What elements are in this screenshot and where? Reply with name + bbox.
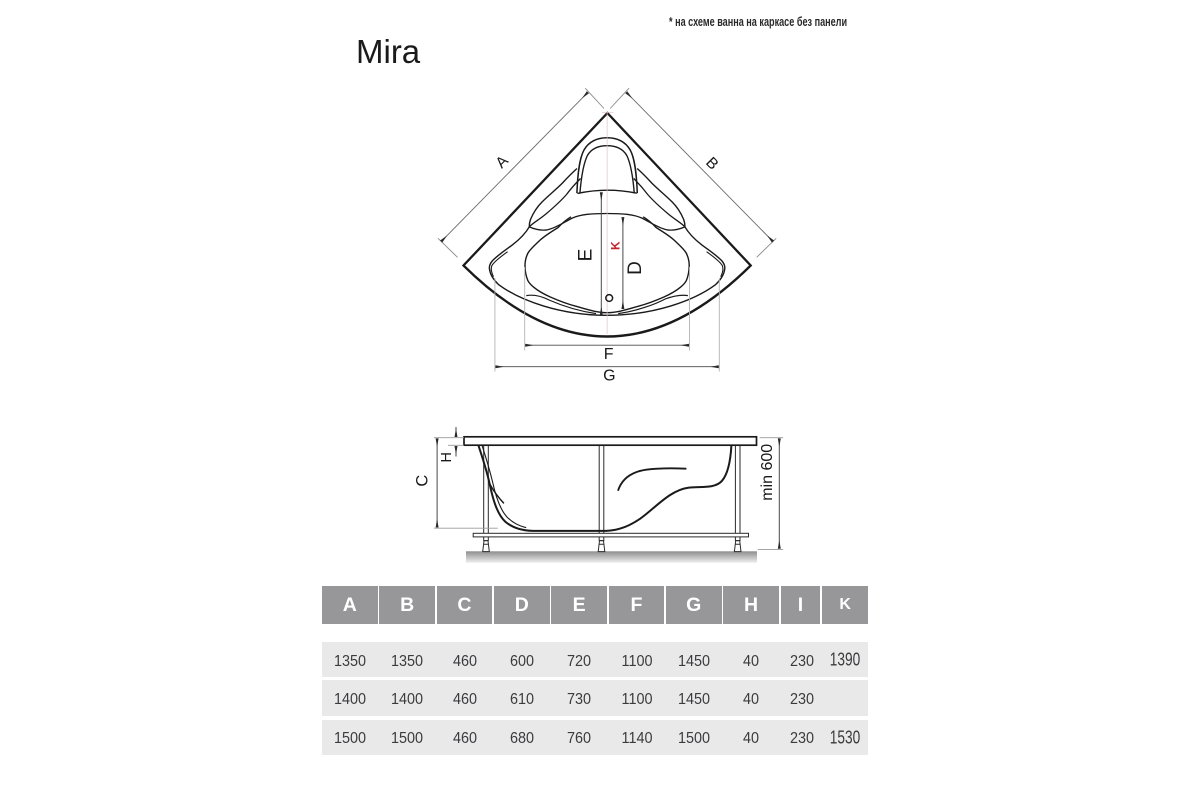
svg-text:min 600: min 600 (759, 444, 776, 501)
svg-text:E: E (576, 249, 597, 262)
svg-text:K: K (608, 241, 622, 250)
svg-text:D: D (625, 261, 646, 275)
svg-text:C: C (413, 475, 431, 487)
svg-text:A: A (493, 152, 513, 172)
svg-text:G: G (603, 367, 615, 384)
svg-text:F: F (604, 346, 614, 363)
svg-text:B: B (702, 154, 721, 173)
svg-text:H: H (439, 452, 455, 462)
